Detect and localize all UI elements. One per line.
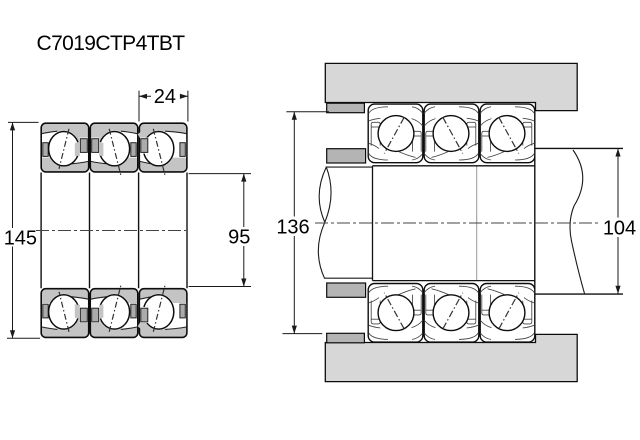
svg-text:95: 95 [228,227,250,249]
svg-text:104: 104 [603,218,636,240]
svg-text:24: 24 [154,86,176,108]
svg-text:145: 145 [4,228,37,250]
svg-text:136: 136 [276,217,309,239]
svg-text:C7019CTP4TBT: C7019CTP4TBT [37,32,186,55]
